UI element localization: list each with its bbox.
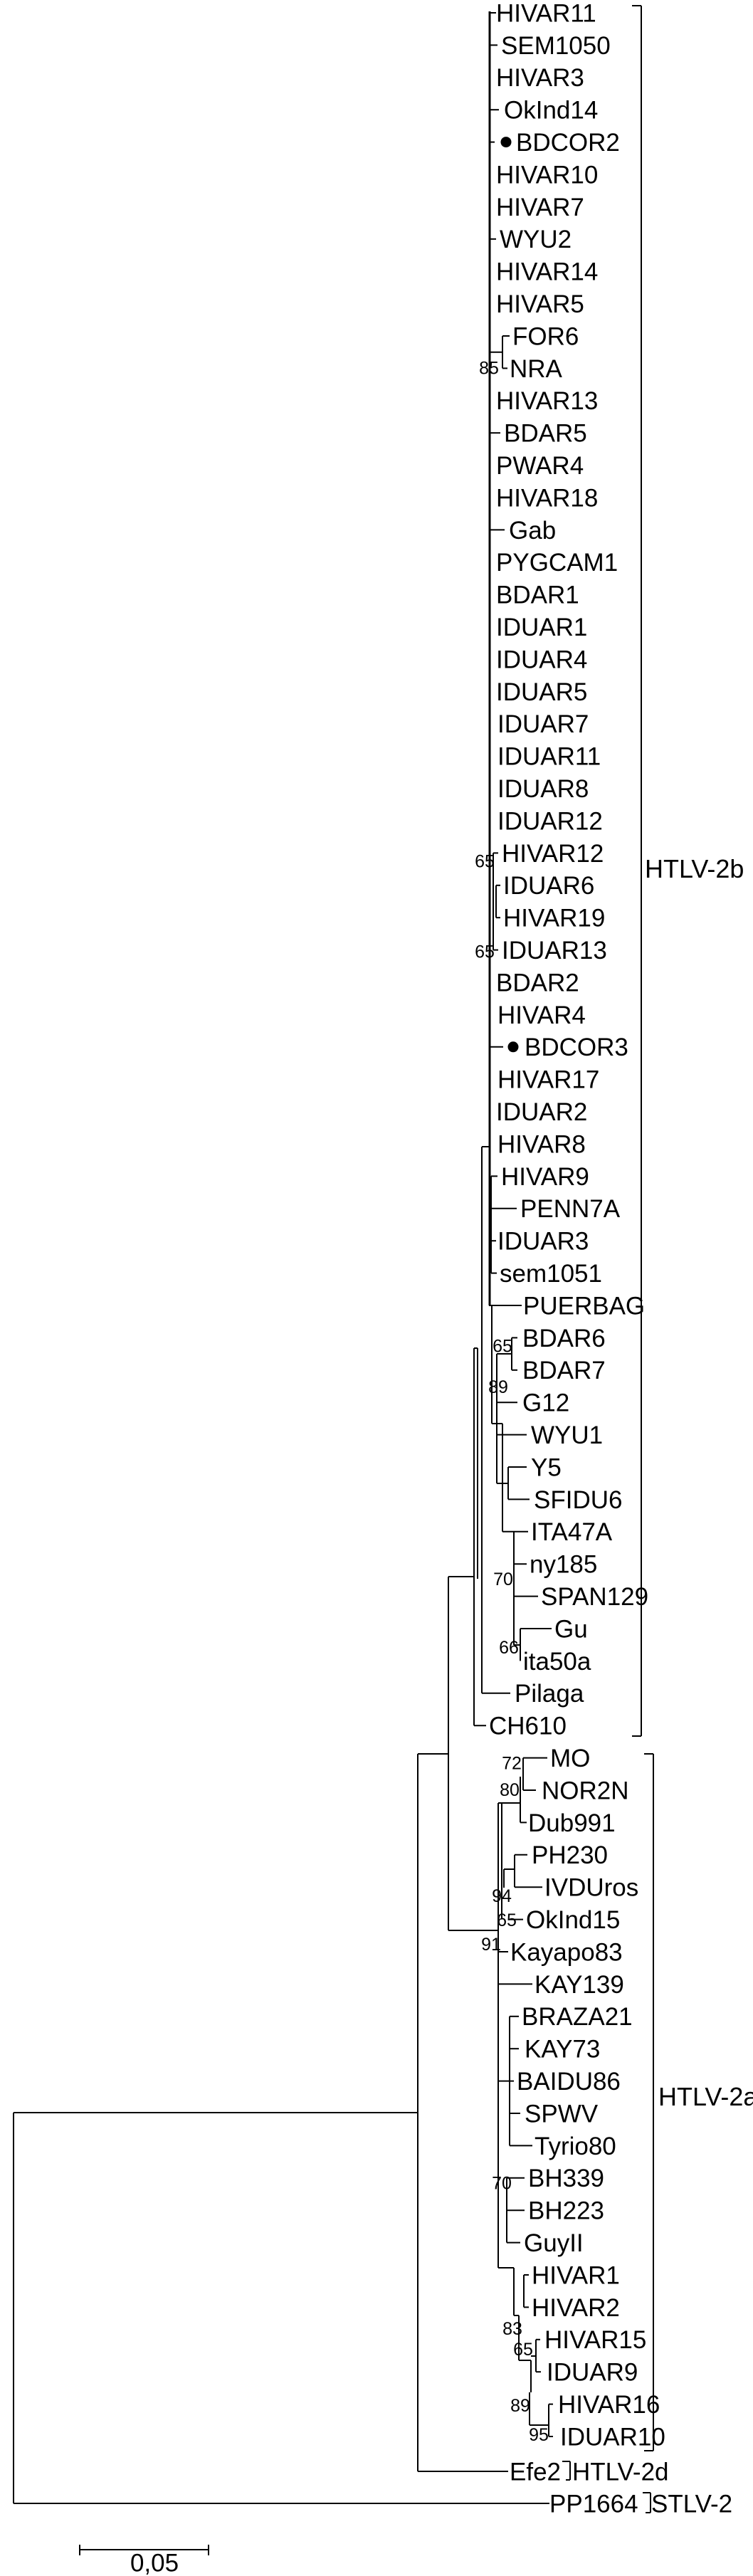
svg-text:STLV-2: STLV-2 bbox=[651, 2490, 732, 2518]
svg-text:Dub991: Dub991 bbox=[528, 1809, 616, 1837]
svg-text:HIVAR7: HIVAR7 bbox=[496, 194, 584, 221]
svg-text:IDUAR7: IDUAR7 bbox=[497, 710, 589, 738]
svg-text:IDUAR13: IDUAR13 bbox=[502, 937, 607, 964]
svg-text:PH230: PH230 bbox=[532, 1841, 608, 1869]
svg-text:KAY73: KAY73 bbox=[525, 2036, 600, 2064]
svg-text:89: 89 bbox=[488, 1377, 508, 1397]
svg-text:HIVAR12: HIVAR12 bbox=[502, 840, 604, 868]
svg-text:HIVAR4: HIVAR4 bbox=[497, 1002, 586, 1029]
svg-text:sem1051: sem1051 bbox=[500, 1260, 602, 1288]
svg-text:PYGCAM1: PYGCAM1 bbox=[496, 549, 618, 577]
svg-text:HTLV-2d: HTLV-2d bbox=[572, 2458, 669, 2486]
svg-text:BDAR7: BDAR7 bbox=[522, 1357, 606, 1384]
svg-text:83: 83 bbox=[502, 2319, 522, 2339]
svg-text:HIVAR14: HIVAR14 bbox=[496, 258, 598, 286]
svg-text:80: 80 bbox=[500, 1780, 520, 1800]
svg-text:HTLV-2b: HTLV-2b bbox=[645, 854, 744, 883]
svg-text:PENN7A: PENN7A bbox=[520, 1195, 621, 1223]
svg-text:IDUAR11: IDUAR11 bbox=[497, 743, 601, 771]
svg-text:HIVAR15: HIVAR15 bbox=[544, 2326, 646, 2354]
svg-text:NRA: NRA bbox=[510, 355, 563, 383]
svg-text:Gab: Gab bbox=[509, 517, 556, 545]
svg-text:MO: MO bbox=[550, 1745, 590, 1772]
svg-text:WYU2: WYU2 bbox=[500, 226, 572, 253]
svg-text:BDAR6: BDAR6 bbox=[522, 1325, 606, 1352]
svg-text:SFIDU6: SFIDU6 bbox=[534, 1486, 622, 1514]
svg-text:BDCOR3: BDCOR3 bbox=[525, 1034, 628, 1061]
svg-text:66: 66 bbox=[499, 1638, 519, 1658]
svg-text:91: 91 bbox=[481, 1935, 501, 1955]
svg-text:ita50a: ita50a bbox=[523, 1648, 591, 1676]
svg-text:HIVAR9: HIVAR9 bbox=[501, 1163, 589, 1191]
svg-text:G12: G12 bbox=[522, 1389, 569, 1417]
svg-text:IDUAR5: IDUAR5 bbox=[496, 678, 587, 706]
svg-text:PWAR4: PWAR4 bbox=[496, 452, 584, 480]
svg-text:72: 72 bbox=[502, 1754, 522, 1774]
svg-text:BRAZA21: BRAZA21 bbox=[522, 2003, 633, 2031]
svg-text:WYU1: WYU1 bbox=[531, 1421, 603, 1449]
svg-text:BH223: BH223 bbox=[528, 2197, 604, 2225]
svg-text:0,05: 0,05 bbox=[130, 2549, 179, 2576]
svg-text:Gu: Gu bbox=[554, 1615, 588, 1643]
svg-text:GuyII: GuyII bbox=[524, 2229, 584, 2257]
svg-text:NOR2N: NOR2N bbox=[542, 1777, 629, 1804]
svg-text:70: 70 bbox=[492, 2174, 512, 2194]
svg-text:Pilaga: Pilaga bbox=[515, 1680, 584, 1708]
svg-text:IDUAR8: IDUAR8 bbox=[497, 775, 589, 803]
svg-text:HIVAR2: HIVAR2 bbox=[532, 2294, 620, 2322]
svg-text:HIVAR11: HIVAR11 bbox=[496, 0, 596, 27]
svg-text:OkInd14: OkInd14 bbox=[504, 97, 598, 125]
svg-text:ITA47A: ITA47A bbox=[531, 1518, 613, 1546]
svg-text:BDAR2: BDAR2 bbox=[496, 969, 579, 997]
svg-text:PP1664: PP1664 bbox=[549, 2490, 638, 2518]
svg-text:IDUAR12: IDUAR12 bbox=[497, 807, 603, 835]
svg-text:65: 65 bbox=[493, 1336, 512, 1356]
svg-text:SPWV: SPWV bbox=[525, 2100, 599, 2128]
svg-text:PUERBAG: PUERBAG bbox=[523, 1292, 645, 1320]
svg-text:65: 65 bbox=[475, 942, 495, 962]
svg-text:IDUAR10: IDUAR10 bbox=[560, 2423, 665, 2451]
svg-text:HIVAR10: HIVAR10 bbox=[496, 161, 598, 189]
svg-text:HIVAR19: HIVAR19 bbox=[503, 905, 605, 932]
svg-text:BH339: BH339 bbox=[528, 2165, 604, 2192]
svg-text:IDUAR9: IDUAR9 bbox=[547, 2359, 638, 2387]
svg-text:ny185: ny185 bbox=[530, 1551, 597, 1579]
svg-text:65: 65 bbox=[513, 2340, 533, 2360]
svg-text:IDUAR6: IDUAR6 bbox=[503, 872, 594, 900]
svg-text:89: 89 bbox=[510, 2396, 530, 2416]
svg-text:HIVAR3: HIVAR3 bbox=[496, 64, 584, 92]
svg-text:OkInd15: OkInd15 bbox=[526, 1906, 620, 1934]
svg-text:IVDUros: IVDUros bbox=[544, 1874, 638, 1902]
svg-text:BAIDU86: BAIDU86 bbox=[517, 2068, 621, 2096]
svg-text:HIVAR13: HIVAR13 bbox=[496, 387, 598, 415]
svg-text:BDAR1: BDAR1 bbox=[496, 582, 579, 609]
svg-text:65: 65 bbox=[497, 1910, 517, 1930]
svg-text:Efe2: Efe2 bbox=[510, 2458, 561, 2486]
svg-text:HIVAR17: HIVAR17 bbox=[497, 1066, 599, 1094]
svg-text:IDUAR4: IDUAR4 bbox=[496, 646, 587, 673]
svg-text:HIVAR1: HIVAR1 bbox=[532, 2261, 620, 2289]
svg-text:70: 70 bbox=[493, 1570, 513, 1589]
svg-text:BDCOR2: BDCOR2 bbox=[516, 129, 620, 157]
svg-text:SEM1050: SEM1050 bbox=[501, 32, 611, 60]
svg-text:65: 65 bbox=[475, 851, 495, 871]
svg-text:HTLV-2a: HTLV-2a bbox=[658, 2082, 753, 2111]
svg-text:HIVAR5: HIVAR5 bbox=[496, 290, 584, 318]
svg-text:Kayapo83: Kayapo83 bbox=[510, 1938, 623, 1966]
svg-text:IDUAR3: IDUAR3 bbox=[497, 1228, 589, 1256]
svg-text:Tyrio80: Tyrio80 bbox=[535, 2133, 616, 2160]
svg-text:CH610: CH610 bbox=[489, 1713, 567, 1740]
svg-text:94: 94 bbox=[492, 1886, 512, 1906]
svg-text:IDUAR1: IDUAR1 bbox=[496, 614, 587, 641]
svg-text:FOR6: FOR6 bbox=[512, 322, 579, 350]
svg-text:HIVAR16: HIVAR16 bbox=[558, 2391, 660, 2419]
svg-text:IDUAR2: IDUAR2 bbox=[496, 1098, 587, 1126]
svg-text:BDAR5: BDAR5 bbox=[504, 420, 587, 448]
svg-text:95: 95 bbox=[529, 2425, 549, 2445]
svg-text:HIVAR18: HIVAR18 bbox=[496, 484, 598, 512]
svg-text:HIVAR8: HIVAR8 bbox=[497, 1130, 586, 1158]
svg-text:KAY139: KAY139 bbox=[535, 1971, 624, 1999]
svg-text:SPAN129: SPAN129 bbox=[541, 1583, 648, 1611]
svg-text:85: 85 bbox=[479, 358, 499, 378]
svg-text:Y5: Y5 bbox=[531, 1453, 562, 1481]
